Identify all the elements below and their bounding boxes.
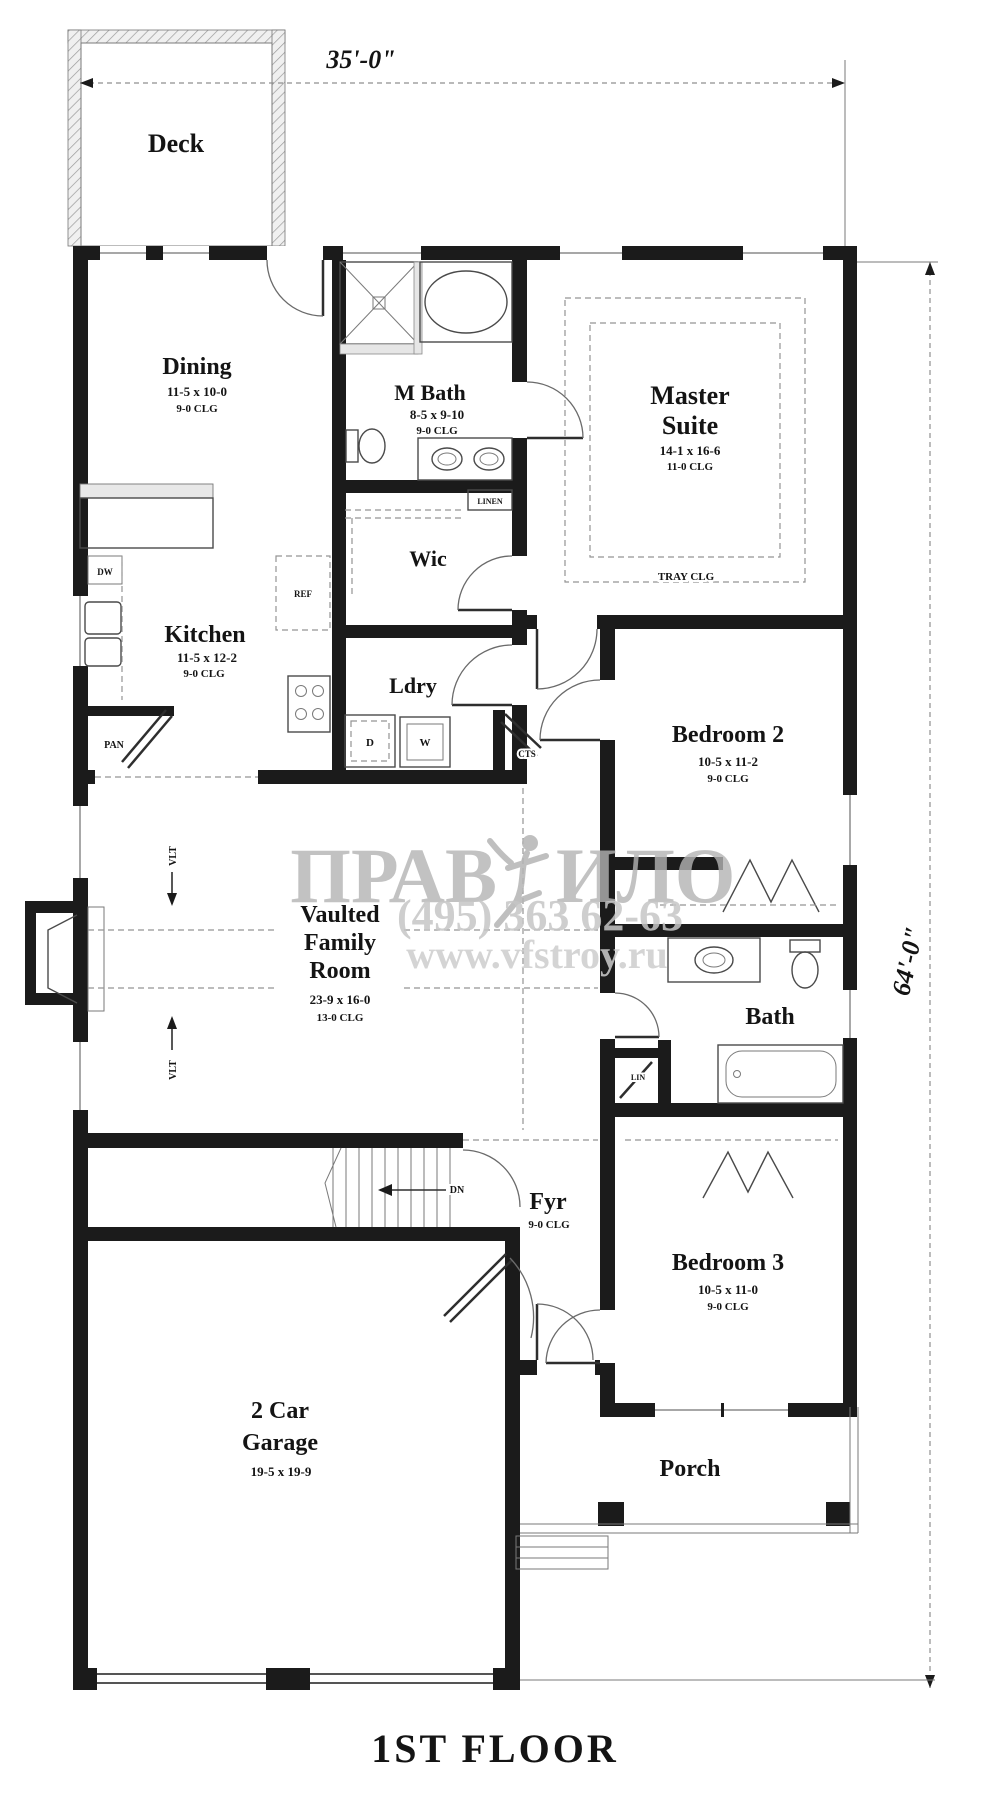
bedroom3-name: Bedroom 3	[672, 1250, 784, 1276]
bath-name: Bath	[745, 1004, 794, 1030]
vanity-master	[418, 438, 512, 480]
bedroom2-size: 10-5 x 11-2	[698, 754, 758, 769]
vlt-label-lower: VLT	[168, 1060, 179, 1080]
porch-structure	[516, 1407, 858, 1569]
kitchen-name: Kitchen	[164, 622, 245, 648]
porch-name: Porch	[660, 1456, 721, 1482]
range	[288, 676, 330, 732]
dashed-guides	[88, 298, 840, 1140]
cts-label: CTS	[518, 749, 536, 759]
vault-markers	[167, 872, 177, 1050]
family-name3: Room	[309, 958, 370, 984]
dw-label: DW	[97, 567, 113, 577]
bedroom2-clg: 9-0 CLG	[707, 773, 749, 785]
toilet-master	[346, 429, 385, 463]
watermark-site: www.vfstroy.ru	[406, 932, 667, 977]
dining-size: 11-5 x 10-0	[167, 384, 227, 399]
window-master-2	[743, 246, 823, 260]
washer-label: W	[420, 737, 431, 749]
doors	[122, 260, 659, 1363]
master-door	[537, 629, 597, 689]
window-top-1	[100, 246, 146, 260]
family-name2: Family	[304, 930, 376, 956]
dn-label: DN	[450, 1185, 465, 1196]
deck-label: Deck	[148, 129, 205, 158]
window-bath	[843, 990, 857, 1038]
dim-height-label: 64'-0"	[886, 924, 929, 998]
window-bedroom3-1	[655, 1403, 721, 1417]
floor-plan-page: Deck 35'-0" 64'-0" Dining 11-5 x 10-0 9-…	[0, 0, 1000, 1808]
window-bedroom2	[843, 795, 857, 865]
window-bedroom3-2	[724, 1403, 788, 1417]
bathtub-master	[420, 262, 512, 342]
laundry-door	[452, 645, 512, 705]
vanity-bath	[668, 938, 760, 982]
family-clg: 13-0 CLG	[317, 1012, 364, 1024]
bedroom3-closet	[703, 1152, 793, 1198]
master-clg: 11-0 CLG	[667, 461, 714, 473]
mbath-clg: 9-0 CLG	[416, 425, 458, 437]
bedroom3-clg: 9-0 CLG	[707, 1301, 749, 1313]
window-master-1	[560, 246, 622, 260]
mbath-name: M Bath	[394, 380, 466, 405]
master-name2: Suite	[662, 411, 718, 440]
foyer-name: Fyr	[529, 1189, 567, 1215]
lin-label: LIN	[631, 1073, 645, 1082]
kitchen-counter	[80, 484, 213, 548]
shower	[340, 262, 422, 354]
bathtub	[718, 1045, 843, 1103]
window-mbath	[343, 246, 421, 260]
toilet-bath	[790, 940, 820, 988]
foyer-clg: 9-0 CLG	[528, 1219, 570, 1231]
window-family-2	[73, 1042, 88, 1110]
stairs	[325, 1148, 450, 1227]
family-size: 23-9 x 16-0	[310, 992, 371, 1007]
bedroom2-door	[540, 680, 600, 740]
pan-label: PAN	[104, 740, 125, 751]
mbath-size: 8-5 x 9-10	[410, 407, 464, 422]
vlt-label-upper: VLT	[168, 846, 179, 866]
kitchen-clg: 9-0 CLG	[183, 668, 225, 680]
dryer-label: D	[366, 737, 374, 749]
wic-name: Wic	[409, 546, 447, 571]
dim-width-label: 35'-0"	[325, 45, 395, 74]
bedroom3-size: 10-5 x 11-0	[698, 1282, 758, 1297]
garage-name1: 2 Car	[251, 1398, 309, 1424]
bedroom2-closet	[723, 860, 819, 912]
dining-clg: 9-0 CLG	[176, 403, 218, 415]
mbath-door	[527, 382, 583, 438]
fireplace	[25, 901, 104, 1011]
deck-door	[267, 260, 323, 316]
garage-entry-door	[444, 1254, 534, 1338]
stair-door	[463, 1150, 520, 1207]
wic-door	[458, 556, 512, 610]
master-size: 14-1 x 16-6	[660, 443, 721, 458]
pantry-door	[122, 710, 172, 768]
kitchen-sink	[85, 602, 121, 666]
linen-label: LINEN	[477, 497, 503, 506]
floor-plan: Deck 35'-0" 64'-0" Dining 11-5 x 10-0 9-…	[0, 0, 1000, 1808]
master-name1: Master	[650, 381, 729, 410]
bedroom3-door	[546, 1310, 600, 1363]
laundry-name: Ldry	[389, 673, 437, 698]
master-tray-note: TRAY CLG	[658, 571, 715, 583]
garage-size: 19-5 x 19-9	[251, 1464, 312, 1479]
page-title: 1ST FLOOR	[371, 1726, 618, 1771]
kitchen-size: 11-5 x 12-2	[177, 650, 237, 665]
window-top-2	[163, 246, 209, 260]
window-family-1	[73, 806, 88, 878]
bedroom2-name: Bedroom 2	[672, 722, 784, 748]
bath-door	[615, 993, 659, 1037]
garage-name2: Garage	[242, 1430, 318, 1456]
dining-name: Dining	[162, 354, 231, 380]
ref-label: REF	[294, 589, 313, 599]
